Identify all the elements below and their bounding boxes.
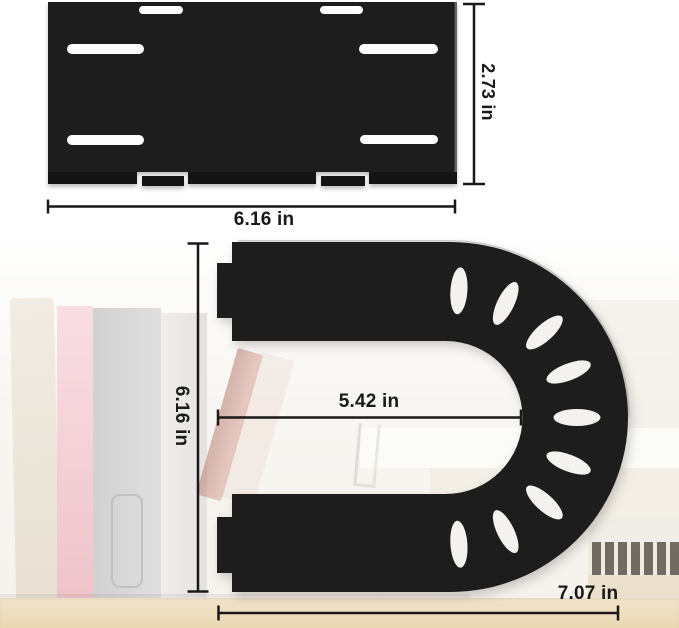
bracket-width-dimension xyxy=(219,606,619,621)
dimension-lines xyxy=(0,0,679,628)
plate-width-label: 6.16 in xyxy=(189,209,339,231)
bracket-width-label: 7.07 in xyxy=(513,583,663,605)
plate-height-label: 2.73 in xyxy=(477,57,499,127)
product-dimension-diagram: 2.73 in 6.16 in 6.16 in 5.42 in 7.07 in xyxy=(0,0,679,628)
bracket-inner-width-label: 5.42 in xyxy=(294,391,444,413)
bracket-height-label: 6.16 in xyxy=(170,371,192,461)
